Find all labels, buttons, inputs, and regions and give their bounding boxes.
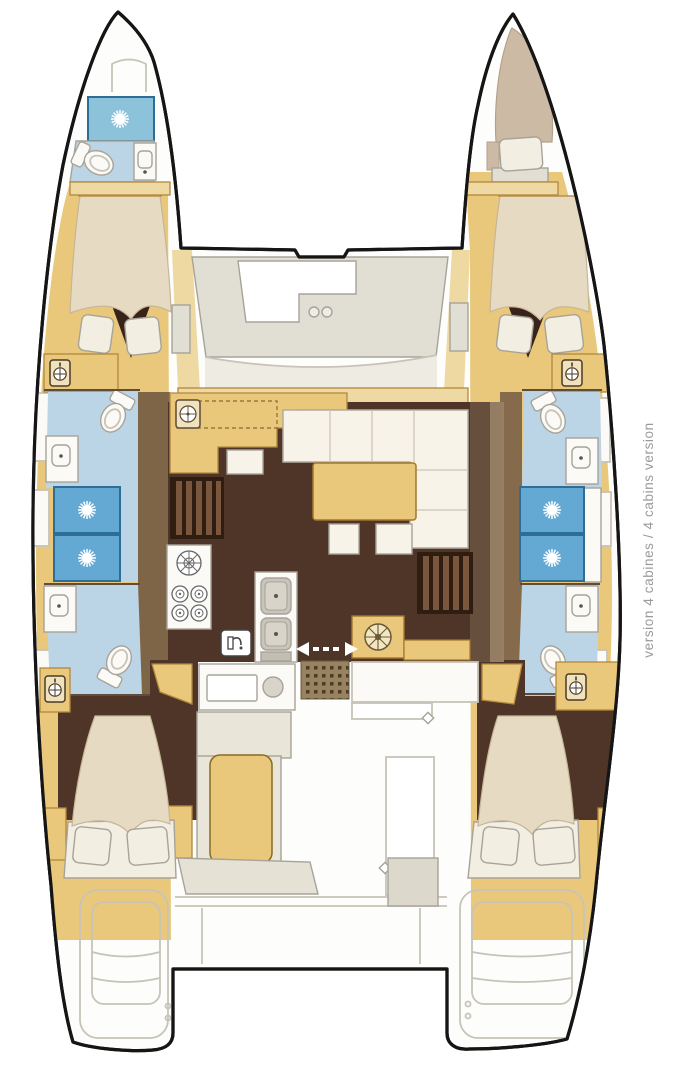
shower-icon: [78, 501, 96, 519]
seat-wing: [172, 305, 190, 353]
shower-icon: [78, 549, 96, 567]
pillow: [496, 314, 534, 354]
galley-sink-unit: [255, 572, 297, 662]
burner-icon: [191, 586, 207, 602]
fore-head-step: [70, 182, 170, 195]
salon-table: [313, 463, 416, 520]
port-showers: [54, 487, 138, 582]
burner-icon: [191, 605, 207, 621]
shower-lobby: [120, 488, 138, 582]
doormat: [301, 661, 349, 699]
cockpit-sideboard: [352, 703, 432, 719]
port-vanity: [44, 354, 118, 392]
mid-sink-drain: [59, 454, 63, 458]
port-corridor: [138, 392, 170, 695]
mirror-cabinet-icon: [566, 674, 586, 700]
aft-sink-drain: [579, 604, 583, 608]
salon-side-wall-light: [490, 402, 504, 662]
side-cushion: [487, 142, 499, 170]
port-forward-bed: [70, 196, 171, 319]
forward-cockpit: [172, 250, 470, 403]
cupholder: [322, 307, 332, 317]
fore-sink-basin: [138, 151, 152, 168]
cupholder: [309, 307, 319, 317]
pillow: [480, 826, 520, 866]
aft-bench: [178, 858, 318, 894]
version-caption: version 4 cabines / 4 cabins version: [641, 422, 656, 657]
pillow: [78, 314, 115, 354]
salon-stool: [329, 524, 359, 554]
cockpit-galley-module: [199, 664, 295, 710]
engine-hatch: [388, 858, 438, 906]
floorplan-page: version 4 cabines / 4 cabins version: [0, 0, 675, 1080]
seat-wing: [450, 303, 468, 351]
mid-sink-drain: [579, 456, 583, 460]
pillow: [72, 826, 112, 866]
drainboard: [261, 652, 291, 661]
stove: [167, 545, 211, 629]
pillow: [544, 314, 584, 354]
mirror-cabinet-icon: [562, 360, 582, 386]
module-round-lid: [263, 677, 283, 697]
shower-locker: [584, 488, 601, 582]
shower-icon: [543, 501, 561, 519]
port-mid-head: [44, 389, 140, 488]
burner-icon: [172, 586, 188, 602]
corner-sink-icon: [176, 400, 200, 428]
module-lid: [207, 675, 257, 701]
mirror-cabinet-icon: [50, 360, 70, 386]
catamaran-floorplan: version 4 cabines / 4 cabins version: [0, 0, 675, 1080]
burner-icon: [172, 605, 188, 621]
starboard-companionway-steps: [417, 552, 473, 614]
starboard-showers: [520, 487, 601, 582]
aft-sink-drain: [57, 604, 61, 608]
pillow: [499, 137, 543, 172]
pillow: [127, 826, 170, 865]
large-burner-icon: [177, 551, 201, 575]
galley-stool: [227, 450, 263, 474]
bench-cushion: [210, 755, 272, 863]
mirror-cabinet-icon: [45, 676, 65, 702]
shower-icon: [543, 549, 561, 567]
fore-sink-drain: [143, 170, 147, 174]
starboard-mid-head: [522, 390, 602, 488]
forepeak-step: [466, 182, 558, 195]
starboard-aft-bed: [478, 716, 574, 834]
pillow: [124, 316, 162, 355]
faucet-appliance-icon: [221, 630, 251, 656]
cockpit-bench: [197, 712, 291, 864]
pillow: [533, 826, 576, 865]
port-companionway-steps: [170, 477, 224, 539]
salon-stool: [376, 524, 412, 554]
cockpit-step: [352, 662, 478, 702]
cabinet-slab: [404, 640, 470, 660]
vent-fan-icon: [365, 624, 391, 650]
salon: [167, 393, 504, 699]
shower-icon: [111, 110, 129, 128]
starboard-forward-bed: [490, 196, 589, 320]
